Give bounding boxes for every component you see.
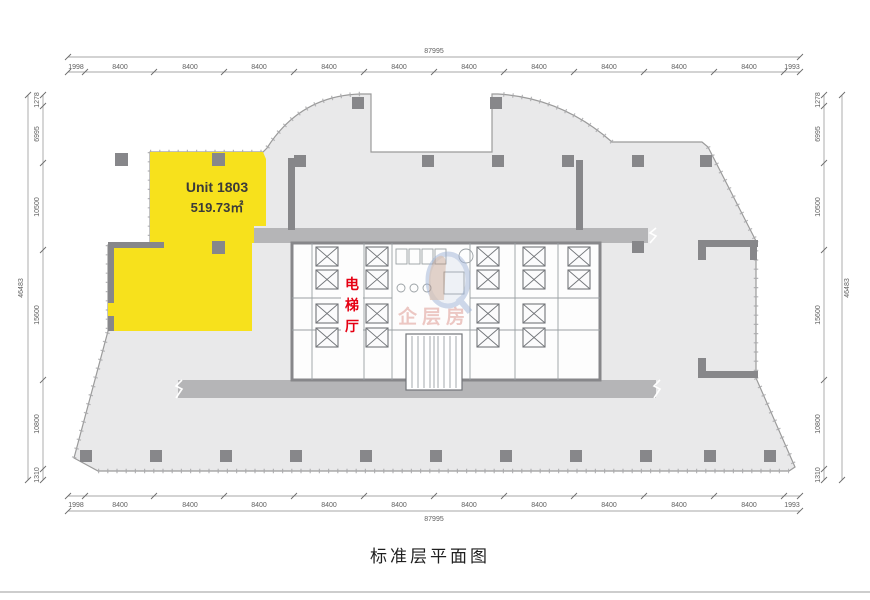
dim-left-seg: 15600 (34, 305, 41, 325)
dim-top-seg: 8400 (461, 64, 477, 71)
stair-core (406, 334, 462, 390)
unit-area: 519.73㎡ (191, 200, 244, 215)
dim-left-seg: 1310 (34, 467, 41, 483)
hall-char-3: 厅 (345, 318, 359, 334)
dim-bottom-seg: 8400 (741, 502, 757, 509)
dim-top-overall: 87995 (424, 48, 444, 55)
dimension-bottom: 1998 8400 8400 8400 8400 8400 8400 8400 … (65, 493, 803, 523)
dim-right-seg: 6995 (815, 126, 822, 142)
dim-bottom-seg: 8400 (671, 502, 687, 509)
dim-bottom-seg: 8400 (531, 502, 547, 509)
hall-char-1: 电 (345, 276, 359, 292)
dim-right-overall: 46483 (844, 278, 851, 298)
dim-bottom-seg: 8400 (391, 502, 407, 509)
dim-left-overall: 46483 (18, 278, 25, 298)
dim-right-seg: 1310 (815, 467, 822, 483)
dim-top-seg: 8400 (112, 64, 128, 71)
dim-bottom-seg: 8400 (461, 502, 477, 509)
dim-top-seg: 8400 (251, 64, 267, 71)
floorplan-page: Unit 1803 519.73㎡ (0, 0, 870, 600)
drawing-title-block: 标准层平面图 (0, 547, 870, 592)
dim-right-seg: 10800 (815, 414, 822, 434)
dim-bottom-seg: 8400 (182, 502, 198, 509)
dim-bottom-seg: 8400 (251, 502, 267, 509)
unit-1803-region[interactable]: Unit 1803 519.73㎡ (108, 152, 266, 331)
dim-top-seg: 1998 (68, 64, 84, 71)
dim-left-seg: 10500 (34, 197, 41, 217)
dimension-left: 46483 1278 6995 10500 15600 10800 1310 (18, 92, 46, 483)
dim-bottom-seg: 8400 (601, 502, 617, 509)
floorplan-drawing: Unit 1803 519.73㎡ (0, 0, 870, 600)
dim-right-seg: 1278 (815, 92, 822, 108)
dim-right-seg: 10500 (815, 197, 822, 217)
watermark-text: 企层房 (397, 305, 470, 328)
dim-bottom-seg: 8400 (112, 502, 128, 509)
page-title: 标准层平面图 (370, 547, 490, 566)
dim-left-seg: 6995 (34, 126, 41, 142)
unit-1803-door (214, 226, 254, 243)
dim-bottom-overall: 87995 (424, 516, 444, 523)
dim-top-seg: 1993 (784, 64, 800, 71)
dimension-right: 1278 6995 10500 15600 10800 1310 46483 (815, 92, 851, 483)
dim-top-seg: 8400 (531, 64, 547, 71)
dim-top-seg: 8400 (741, 64, 757, 71)
dim-left-seg: 10800 (34, 414, 41, 434)
dim-top-seg: 8400 (671, 64, 687, 71)
dimension-top: 87995 1998 8400 8400 8400 8400 8400 8400… (65, 48, 803, 75)
dim-bottom-seg: 1993 (784, 502, 800, 509)
dim-bottom-seg: 8400 (321, 502, 337, 509)
unit-name: Unit 1803 (186, 179, 248, 195)
dim-left-seg: 1278 (34, 92, 41, 108)
dim-top-seg: 8400 (391, 64, 407, 71)
elevator-hall-label: 电 梯 厅 (345, 276, 359, 334)
dim-top-seg: 8400 (182, 64, 198, 71)
dim-top-seg: 8400 (321, 64, 337, 71)
corridor-upper (252, 228, 648, 243)
dim-top-seg: 8400 (601, 64, 617, 71)
hall-char-2: 梯 (345, 297, 359, 313)
dim-right-seg: 15600 (815, 305, 822, 325)
